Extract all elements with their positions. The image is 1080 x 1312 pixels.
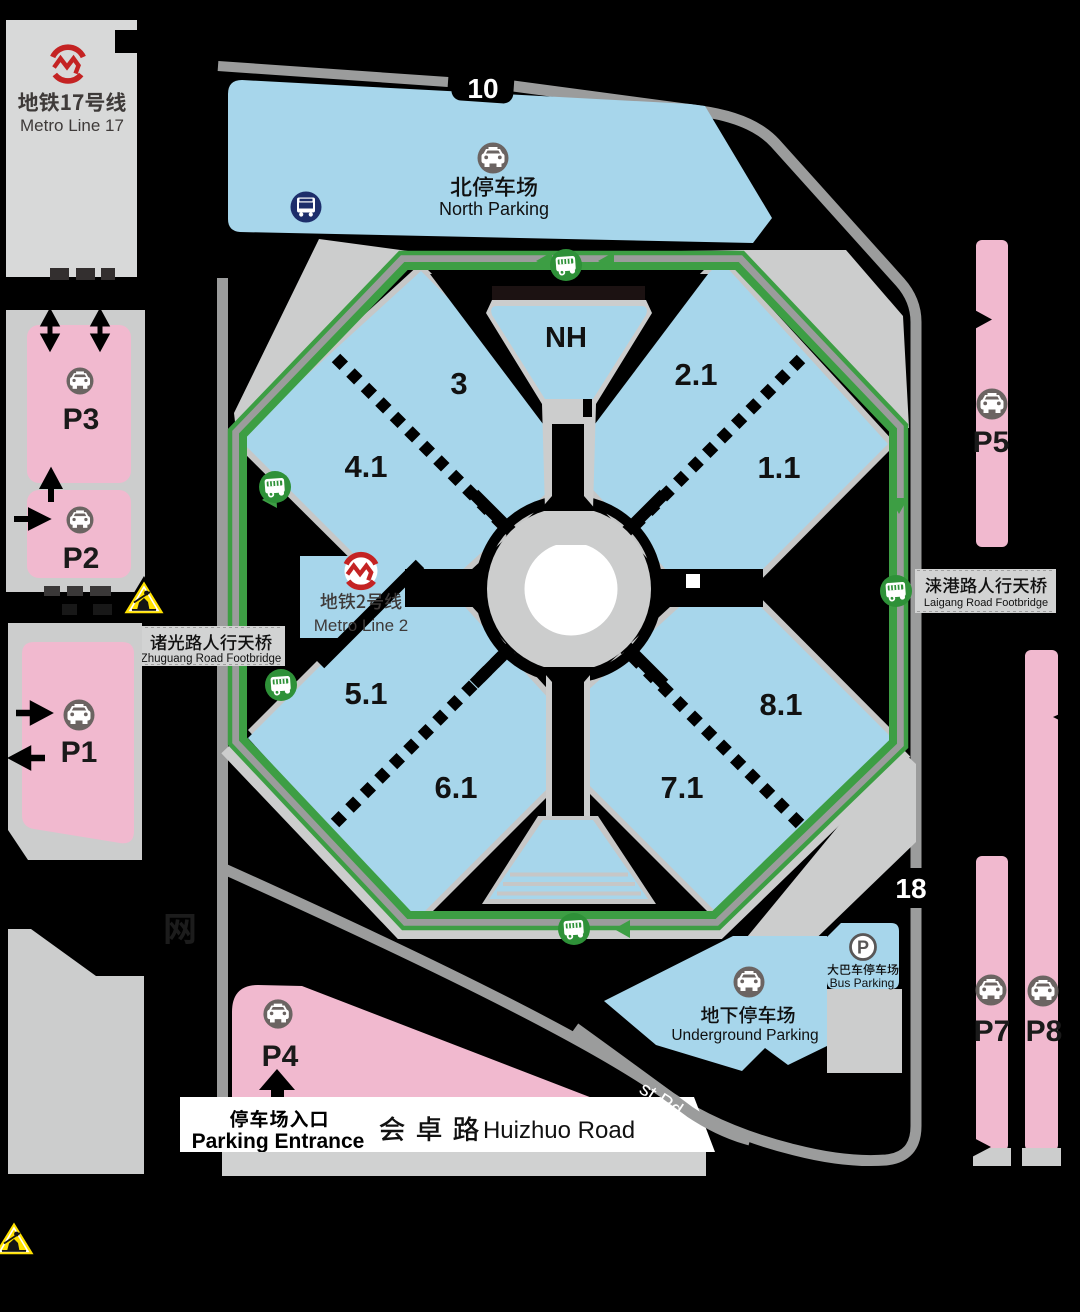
svg-text:P: P xyxy=(857,938,869,958)
svg-text:P8: P8 xyxy=(1026,1015,1063,1048)
svg-text:8.1: 8.1 xyxy=(759,687,802,722)
svg-text:Bus Parking: Bus Parking xyxy=(830,976,895,990)
svg-text:Laigang Road Footbridge: Laigang Road Footbridge xyxy=(924,597,1048,609)
svg-text:Huizhuo Road: Huizhuo Road xyxy=(483,1117,635,1144)
svg-text:P1: P1 xyxy=(61,736,98,769)
svg-text:Metro Line 2: Metro Line 2 xyxy=(314,616,409,635)
svg-text:P2: P2 xyxy=(63,542,100,575)
svg-text:Parking Entrance: Parking Entrance xyxy=(192,1130,365,1153)
svg-text:P4: P4 xyxy=(262,1040,299,1073)
svg-text:18: 18 xyxy=(895,873,926,904)
svg-text:P5: P5 xyxy=(973,426,1010,459)
svg-text:Zhuguang Road Footbridge: Zhuguang Road Footbridge xyxy=(141,653,282,665)
svg-text:5.1: 5.1 xyxy=(344,676,387,711)
svg-text:NH: NH xyxy=(545,322,587,354)
svg-text:North Parking: North Parking xyxy=(439,199,549,219)
svg-text:Metro Line 17: Metro Line 17 xyxy=(20,116,124,135)
svg-text:1.1: 1.1 xyxy=(757,450,800,485)
svg-text:P7: P7 xyxy=(974,1015,1011,1048)
svg-text:4.1: 4.1 xyxy=(344,449,387,484)
svg-text:2.1: 2.1 xyxy=(674,357,717,392)
svg-text:3: 3 xyxy=(450,366,467,401)
svg-text:7.1: 7.1 xyxy=(660,770,703,805)
svg-text:Underground Parking: Underground Parking xyxy=(671,1027,818,1044)
svg-text:6.1: 6.1 xyxy=(434,770,477,805)
svg-text:10: 10 xyxy=(467,73,498,104)
svg-text:P3: P3 xyxy=(63,403,100,436)
